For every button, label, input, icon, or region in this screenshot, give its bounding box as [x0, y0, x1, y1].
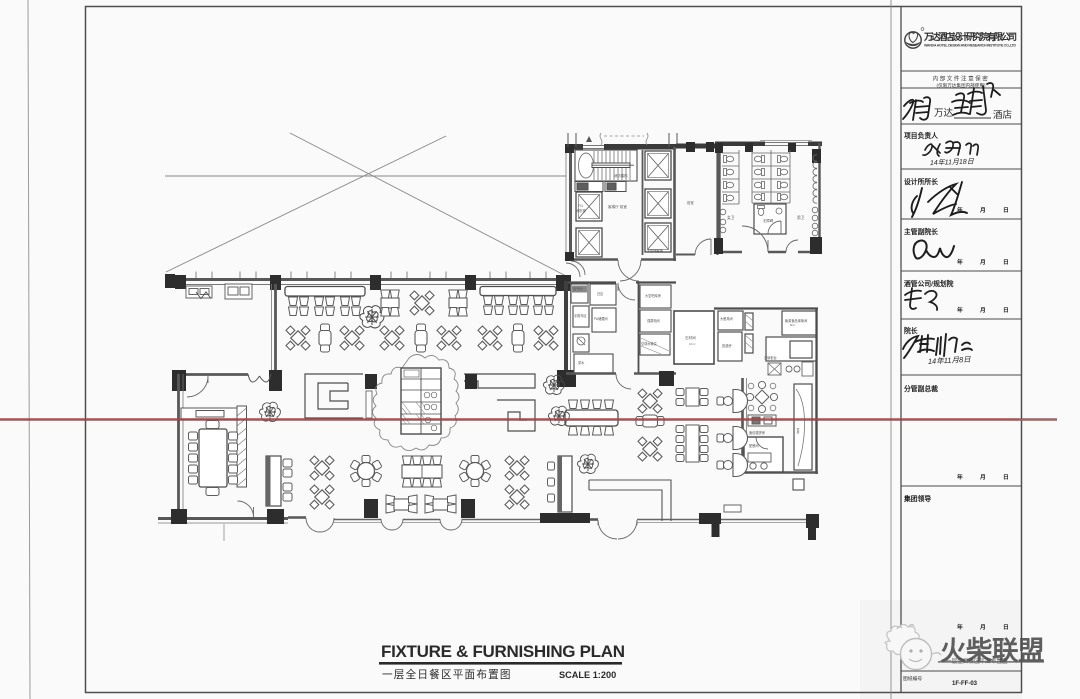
- svg-text:万达酒店设计研究院有限公司: 万达酒店设计研究院有限公司: [923, 31, 1017, 42]
- svg-text:6m²: 6m²: [790, 323, 795, 327]
- svg-text:男卫: 男卫: [797, 215, 805, 220]
- svg-text:SCALE 1:200: SCALE 1:200: [559, 670, 616, 680]
- svg-text:白区: 白区: [597, 291, 604, 296]
- svg-text:前室: 前室: [687, 200, 694, 205]
- svg-text:臭气间: 臭气间: [573, 286, 583, 291]
- svg-text:图纸编号: 图纸编号: [903, 675, 922, 682]
- svg-text:日: 日: [1003, 474, 1009, 481]
- svg-text:16m²: 16m²: [689, 342, 695, 346]
- svg-text:主管副院长: 主管副院长: [904, 227, 938, 236]
- svg-text:内部文件注意保密: 内部文件注意保密: [933, 75, 990, 83]
- svg-text:一层全日餐区平面布置图: 一层全日餐区平面布置图: [382, 668, 512, 681]
- svg-text:管井: 管井: [796, 427, 800, 435]
- svg-text:茶水: 茶水: [578, 360, 585, 365]
- svg-text:年: 年: [957, 473, 963, 481]
- svg-text:聚源食品库管间: 聚源食品库管间: [785, 318, 807, 323]
- svg-text:投递房: 投递房: [722, 343, 732, 348]
- svg-text:月: 月: [979, 306, 986, 314]
- svg-text:月: 月: [979, 473, 986, 481]
- svg-text:客梯厅 前室: 客梯厅 前室: [608, 204, 627, 209]
- svg-text:集团领导: 集团领导: [903, 494, 931, 503]
- svg-text:年: 年: [957, 306, 963, 314]
- svg-text:PA储藏间: PA储藏间: [594, 316, 608, 321]
- svg-text:日: 日: [1003, 207, 1009, 214]
- svg-text:万达: 万达: [934, 107, 954, 119]
- svg-text:无障碍: 无障碍: [763, 218, 774, 223]
- svg-text:配餐间: 配餐间: [749, 443, 759, 448]
- svg-text:年: 年: [957, 206, 963, 214]
- svg-text:面包糕饼房: 面包糕饼房: [749, 430, 765, 435]
- svg-text:FIXTURE & FURNISHING PLAN: FIXTURE & FURNISHING PLAN: [381, 642, 625, 661]
- svg-text:石材间: 石材间: [685, 335, 696, 340]
- svg-text:月: 月: [979, 623, 986, 631]
- svg-text:洗碗柜台: 洗碗柜台: [764, 355, 777, 360]
- svg-text:设计所所长: 设计所所长: [904, 177, 938, 186]
- svg-text:14年11月18日: 14年11月18日: [930, 158, 975, 168]
- svg-text:项目负责人: 项目负责人: [904, 131, 938, 140]
- svg-text:日: 日: [1003, 624, 1009, 631]
- svg-text:年: 年: [957, 623, 963, 631]
- svg-text:酒管公司/规划院: 酒管公司/规划院: [904, 279, 954, 288]
- svg-text:日: 日: [1003, 307, 1009, 314]
- svg-text:强弱电间: 强弱电间: [647, 318, 660, 323]
- svg-text:年: 年: [957, 258, 963, 266]
- svg-text:消防梯: 消防梯: [576, 208, 586, 213]
- svg-text:月: 月: [979, 206, 986, 214]
- svg-text:大堂吧库房: 大堂吧库房: [645, 293, 661, 298]
- svg-text:分管副总裁: 分管副总裁: [904, 384, 938, 393]
- svg-text:F11: F11: [578, 204, 583, 208]
- svg-text:无障碍客梯: 无障碍客梯: [647, 248, 664, 253]
- svg-text:大餐具间: 大餐具间: [720, 316, 733, 321]
- svg-text:WANDA HOTEL DESIGN AND RESEARC: WANDA HOTEL DESIGN AND RESEARCH INSTITUT…: [924, 44, 1016, 48]
- svg-text:手推车区: 手推车区: [574, 313, 588, 318]
- svg-text:空调水管井: 空调水管井: [641, 341, 657, 346]
- svg-text:(仅限万达集团内部使用): (仅限万达集团内部使用): [937, 82, 986, 89]
- svg-text:1F-FF-03: 1F-FF-03: [952, 681, 978, 687]
- svg-text:消防楼梯: 消防楼梯: [614, 173, 628, 178]
- svg-text:月: 月: [979, 258, 986, 266]
- svg-text:日: 日: [1003, 259, 1009, 266]
- svg-text:酒店: 酒店: [993, 109, 1012, 121]
- svg-text:院长: 院长: [904, 326, 918, 335]
- svg-text:女卫: 女卫: [727, 215, 735, 220]
